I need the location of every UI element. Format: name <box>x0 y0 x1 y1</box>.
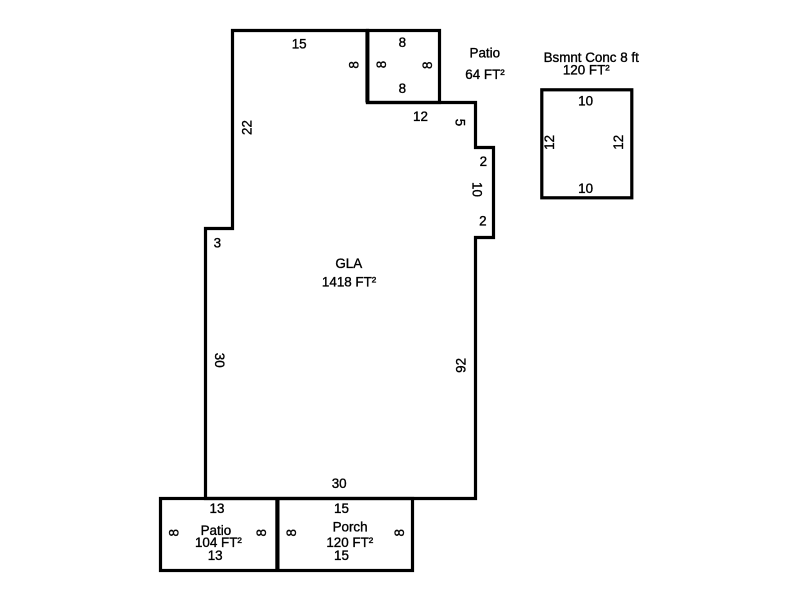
svg-text:30: 30 <box>212 353 227 368</box>
svg-text:8: 8 <box>420 62 435 69</box>
svg-text:22: 22 <box>240 120 255 135</box>
svg-text:30: 30 <box>332 476 347 491</box>
svg-text:12: 12 <box>611 135 626 150</box>
svg-text:8: 8 <box>284 529 299 536</box>
svg-text:8: 8 <box>254 529 269 536</box>
svg-text:64 FT²: 64 FT² <box>465 67 505 82</box>
svg-text:15: 15 <box>334 501 349 516</box>
svg-text:8: 8 <box>399 35 406 50</box>
svg-text:13: 13 <box>208 548 223 563</box>
svg-text:5: 5 <box>453 119 468 126</box>
svg-text:1418 FT²: 1418 FT² <box>322 274 377 289</box>
svg-text:Porch: Porch <box>333 520 368 535</box>
svg-text:8: 8 <box>347 61 362 68</box>
svg-text:12: 12 <box>542 135 557 150</box>
svg-text:Patio: Patio <box>470 46 501 61</box>
svg-text:2: 2 <box>479 214 486 229</box>
svg-text:10: 10 <box>470 182 485 197</box>
svg-text:10: 10 <box>578 181 593 196</box>
svg-text:15: 15 <box>334 548 349 563</box>
svg-text:2: 2 <box>480 154 487 169</box>
svg-text:12: 12 <box>413 109 428 124</box>
svg-text:8: 8 <box>167 529 182 536</box>
svg-text:15: 15 <box>292 37 307 52</box>
svg-text:92: 92 <box>454 358 469 373</box>
svg-text:10: 10 <box>578 93 593 108</box>
svg-text:8: 8 <box>399 81 406 96</box>
svg-text:8: 8 <box>374 61 389 68</box>
svg-text:8: 8 <box>392 529 407 536</box>
svg-text:13: 13 <box>210 501 225 516</box>
svg-text:120 FT²: 120 FT² <box>563 63 610 78</box>
svg-text:3: 3 <box>214 236 221 251</box>
svg-text:GLA: GLA <box>335 256 362 271</box>
